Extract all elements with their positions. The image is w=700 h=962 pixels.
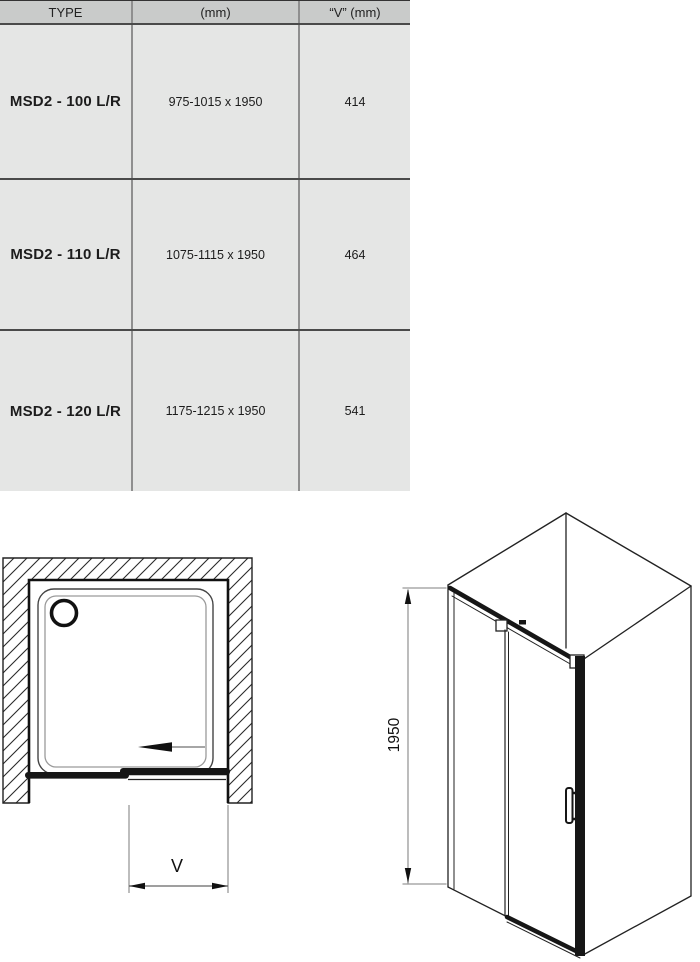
roller-bracket <box>496 620 507 631</box>
row-size: 1175-1215 x 1950 <box>133 331 300 491</box>
v-dimension-label: V <box>171 856 183 876</box>
row-v: 541 <box>300 331 410 491</box>
row-type: MSD2 - 120 L/R <box>0 331 133 491</box>
header-v-mm: “V” (mm) <box>300 1 410 23</box>
door-bottom-rail <box>507 917 580 953</box>
cabin-top-front-right-edge <box>581 586 691 661</box>
drain-circle <box>52 601 77 626</box>
row-type: MSD2 - 100 L/R <box>0 25 133 178</box>
row-v: 464 <box>300 180 410 329</box>
door-top-rail <box>450 588 577 661</box>
height-dimension: 1950 <box>386 588 446 884</box>
height-dimension-label: 1950 <box>386 717 403 752</box>
cabin-top-back-left-edge <box>448 513 566 585</box>
technical-diagrams: V <box>0 510 700 962</box>
cabin-top-back-right-edge <box>566 513 691 586</box>
table-row: MSD2 - 120 L/R 1175-1215 x 1950 541 <box>0 331 410 491</box>
header-type: TYPE <box>0 1 133 23</box>
table-row: MSD2 - 110 L/R 1075-1115 x 1950 464 <box>0 180 410 331</box>
spec-table: TYPE (mm) “V” (mm) MSD2 - 100 L/R 975-10… <box>0 0 410 491</box>
row-type: MSD2 - 110 L/R <box>0 180 133 329</box>
spec-table-header-row: TYPE (mm) “V” (mm) <box>0 0 410 25</box>
v-dimension: V <box>129 805 228 893</box>
row-v: 414 <box>300 25 410 178</box>
roller-nub <box>519 620 526 625</box>
isometric-view-diagram: 1950 <box>386 513 691 958</box>
door-handle <box>566 788 576 823</box>
cabin-bottom-right-edge <box>583 896 691 955</box>
door-fixed-panel-bar <box>120 768 230 775</box>
door-sliding-panel-bar <box>25 772 129 779</box>
row-size: 1075-1115 x 1950 <box>133 180 300 329</box>
plan-view-diagram: V <box>3 558 252 893</box>
door-stile <box>575 656 585 956</box>
row-size: 975-1015 x 1950 <box>133 25 300 178</box>
door-bottom-rail-edge <box>507 922 580 958</box>
table-row: MSD2 - 100 L/R 975-1015 x 1950 414 <box>0 25 410 180</box>
header-size-mm: (mm) <box>133 1 300 23</box>
door-top-rail-lower-edge <box>452 596 579 669</box>
